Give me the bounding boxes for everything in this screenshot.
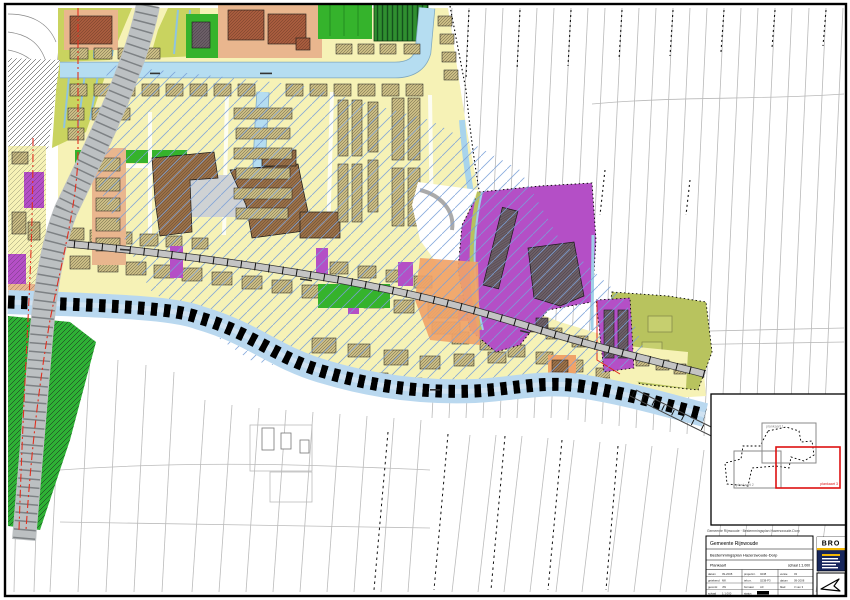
title-sheet-label: Plankaart bbox=[710, 564, 727, 568]
svg-text:09-2008: 09-2008 bbox=[722, 572, 733, 576]
zoning-map: plankaart 1 plankaart 2 plankaart 3 Geme… bbox=[0, 0, 850, 600]
title-block: Gemeente Rijnwoude Bestemmingsplan Hazer… bbox=[706, 536, 845, 596]
inset-sheet1-label: plankaart 1 bbox=[766, 425, 784, 429]
plan-sheet: plankaart 1 plankaart 2 plankaart 3 Geme… bbox=[0, 0, 850, 600]
north-arrow-icon bbox=[817, 573, 845, 596]
svg-text:03: 03 bbox=[794, 572, 798, 576]
title-scale-label: schaal 1:1.000 bbox=[788, 564, 810, 568]
svg-text:getekend: getekend bbox=[708, 579, 720, 583]
svg-text:09-2008: 09-2008 bbox=[794, 579, 805, 583]
inset-sheet2-label: plankaart 2 bbox=[736, 483, 754, 487]
svg-text:datum: datum bbox=[780, 579, 788, 583]
svg-text:JW: JW bbox=[722, 585, 726, 589]
svg-text:gecontr.: gecontr. bbox=[708, 585, 718, 589]
svg-text:datum: datum bbox=[708, 572, 716, 576]
svg-text:tek.nr.: tek.nr. bbox=[744, 579, 752, 583]
svg-text:versie: versie bbox=[780, 572, 788, 576]
footer-note: Gemeente Rijnwoude · Bestemmingsplan Haz… bbox=[707, 529, 800, 533]
title-plan: Bestemmingsplan Hazerswoude-Dorp bbox=[710, 553, 778, 558]
svg-text:A0: A0 bbox=[760, 585, 764, 589]
overview-inset: plankaart 1 plankaart 2 plankaart 3 bbox=[711, 394, 846, 525]
svg-text:MK: MK bbox=[722, 579, 726, 583]
inset-sheet3-label: plankaart 3 bbox=[820, 482, 838, 486]
title-municipality: Gemeente Rijnwoude bbox=[710, 541, 758, 547]
svg-text:3 van 3: 3 van 3 bbox=[794, 585, 804, 589]
svg-text:0238: 0238 bbox=[760, 572, 767, 576]
svg-text:formaat: formaat bbox=[744, 585, 754, 589]
svg-text:0238-P3: 0238-P3 bbox=[760, 579, 771, 583]
svg-text:projectnr.: projectnr. bbox=[744, 572, 756, 576]
farmland-bottom-ditch-dots bbox=[374, 432, 618, 590]
svg-text:blad: blad bbox=[780, 585, 786, 589]
farmland-bottom-sheds bbox=[262, 428, 309, 453]
bro-logo-text: BRO bbox=[822, 541, 841, 548]
bro-logo: BRO bbox=[817, 537, 845, 571]
